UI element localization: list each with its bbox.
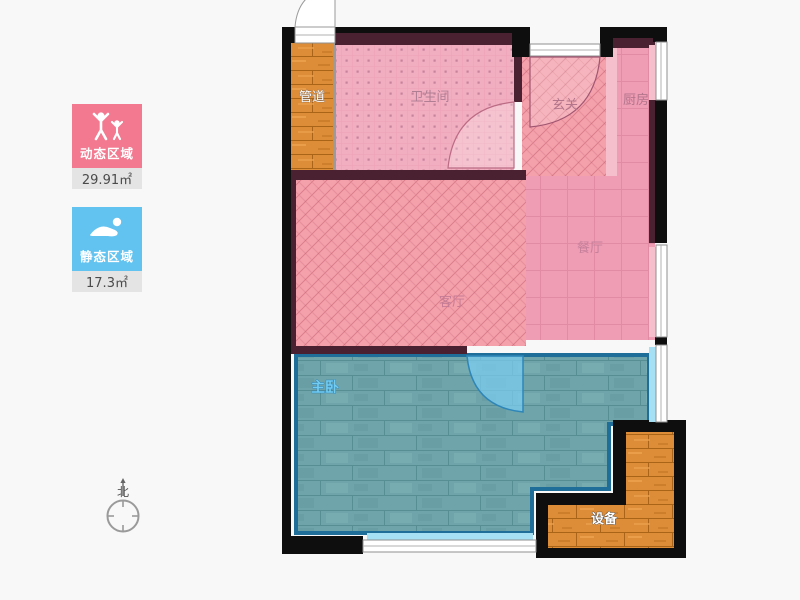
wall: [282, 33, 291, 554]
wall: [335, 27, 522, 33]
static-zone-area: 17.3㎡: [72, 271, 142, 292]
floorplan-viewer: 管道 卫生间 玄关 厨房 餐厅 客厅 主卧 设备 动态区域: [0, 0, 800, 600]
swimmer-icon: [72, 213, 142, 245]
room-label-master-bedroom: 主卧: [311, 379, 339, 396]
dining-room: [526, 176, 655, 340]
dynamic-zone-card: 动态区域: [72, 104, 142, 168]
wall: [653, 27, 667, 42]
wall: [600, 27, 613, 57]
wall: [291, 170, 526, 180]
wall: [291, 346, 467, 354]
room-label-kitchen: 厨房: [623, 92, 649, 108]
compass: 北: [98, 476, 148, 538]
duct-room: [291, 40, 333, 170]
exterior-door-arc: [295, 0, 335, 27]
bedroom-right-window-strip: [649, 347, 656, 422]
kitchen-window-strip: [649, 45, 656, 100]
static-zone-card: 静态区域: [72, 207, 142, 271]
dynamic-zone-label: 动态区域: [80, 143, 134, 162]
wall: [655, 100, 667, 243]
compass-north-label: 北: [117, 485, 129, 499]
room-label-living: 客厅: [439, 294, 465, 310]
room-label-dining: 餐厅: [577, 240, 603, 256]
room-label-bathroom: 卫生间: [410, 90, 449, 105]
room-label-duct: 管道: [299, 90, 325, 105]
compass-arrow-head: [120, 478, 125, 483]
wall: [512, 27, 530, 57]
people-arms-up-icon: [72, 110, 142, 144]
static-zone-label: 静态区域: [80, 246, 134, 265]
wall: [291, 180, 296, 346]
wall: [649, 100, 655, 243]
wall: [282, 536, 363, 554]
dining-window-strip: [649, 247, 656, 337]
room-label-hallway: 玄关: [552, 98, 578, 113]
dynamic-zone-area: 29.91㎡: [72, 168, 142, 189]
room-label-equipment: 设备: [591, 511, 618, 527]
duct-divider: [333, 40, 336, 170]
hallway-kitchen-divider: [606, 45, 617, 176]
living-room: [296, 180, 526, 346]
room-floors: [291, 40, 655, 533]
bedroom-bottom-window-strip: [367, 533, 533, 540]
wall: [335, 33, 522, 45]
wall: [655, 337, 667, 345]
